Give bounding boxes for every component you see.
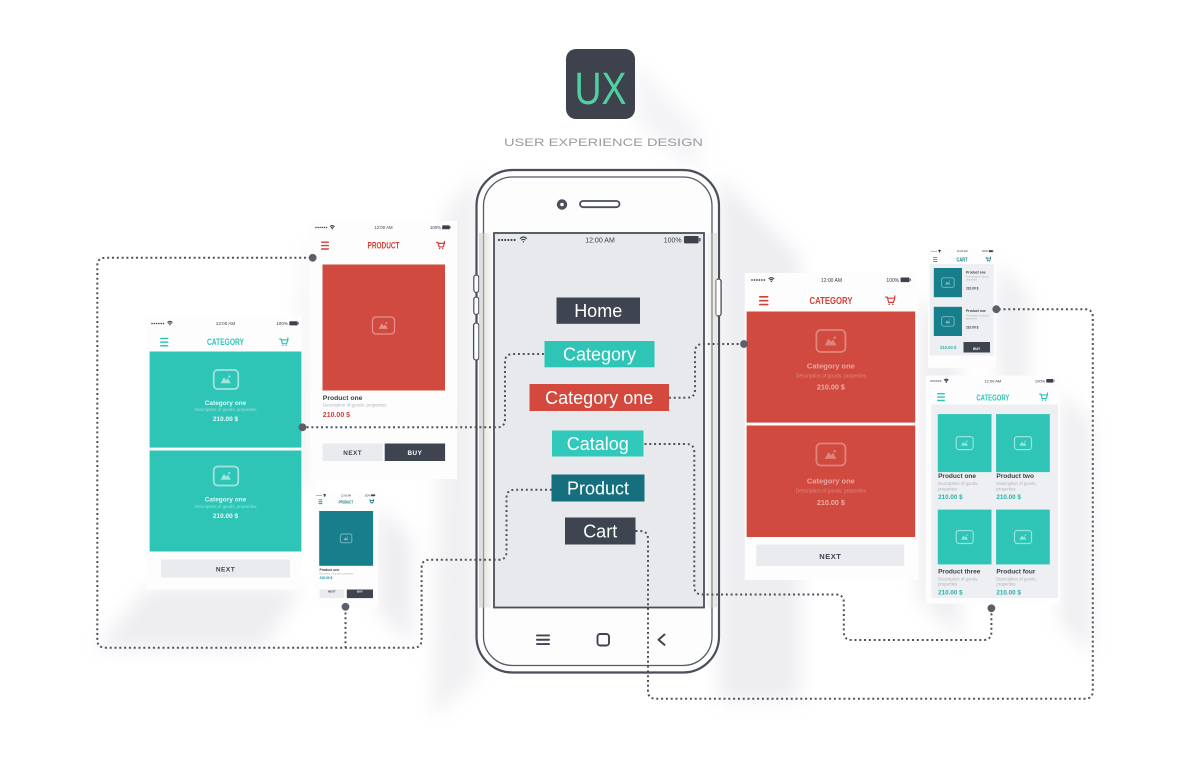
svg-text:12:00 AM: 12:00 AM [341,494,351,497]
svg-text:properties: properties [938,486,957,491]
svg-text:Category: Category [563,344,636,364]
svg-text:210.00 $: 210.00 $ [323,412,350,419]
svg-text:Category one: Category one [807,476,855,485]
svg-text:Description of goods, properti: Description of goods, properties [796,489,867,495]
svg-text:100%: 100% [886,278,899,284]
svg-text:Product four: Product four [996,569,1035,576]
svg-text:Catalog: Catalog [567,434,629,454]
svg-text:Product one: Product one [966,270,986,274]
svg-text:NEXT: NEXT [819,552,841,561]
svg-text:BUY: BUY [357,590,363,594]
svg-text:12:00 AM: 12:00 AM [374,225,393,230]
svg-text:Product one: Product one [966,309,986,313]
svg-text:210.00 $: 210.00 $ [213,416,239,423]
svg-text:NEXT: NEXT [216,567,235,574]
svg-text:BUY: BUY [973,347,981,351]
svg-text:properties: properties [966,318,978,321]
svg-text:210.00 $: 210.00 $ [938,589,963,596]
svg-text:properties: properties [996,582,1015,587]
svg-text:12:00 AM: 12:00 AM [821,278,842,284]
svg-text:CATEGORY: CATEGORY [207,337,244,348]
svg-text:210.00 $: 210.00 $ [938,494,963,501]
svg-text:100%: 100% [1035,378,1046,383]
svg-text:Category one: Category one [807,361,855,370]
svg-text:PRODUCT: PRODUCT [339,499,354,504]
svg-text:Description of goods, properti: Description of goods, properties [320,572,355,575]
svg-text:CART: CART [957,257,968,263]
svg-text:UX: UX [575,63,627,114]
svg-text:CATEGORY: CATEGORY [976,392,1009,402]
svg-text:Description of goods, properti: Description of goods, properties [195,407,258,412]
svg-text:210.00 $: 210.00 $ [996,589,1021,596]
svg-text:210.00 $: 210.00 $ [966,287,979,291]
svg-text:210.00 $: 210.00 $ [966,325,979,329]
svg-text:210.00 $: 210.00 $ [940,345,957,350]
svg-text:210.00 $: 210.00 $ [996,494,1021,501]
svg-text:Category one: Category one [545,388,653,408]
svg-text:12:00 AM: 12:00 AM [585,238,615,245]
svg-text:Category one: Category one [205,497,247,504]
svg-text:NEXT: NEXT [328,590,336,594]
svg-text:100%: 100% [664,238,682,245]
svg-text:BUY: BUY [408,450,423,457]
svg-text:Product two: Product two [996,473,1034,480]
svg-text:Description of goods, properti: Description of goods, properties [195,504,258,509]
svg-text:NEXT: NEXT [343,450,362,457]
svg-text:properties: properties [966,279,978,282]
svg-text:Cart: Cart [583,521,617,541]
svg-text:properties: properties [996,486,1015,491]
svg-text:CATEGORY: CATEGORY [810,295,853,307]
svg-text:PRODUCT: PRODUCT [368,240,400,250]
svg-text:Product one: Product one [320,568,340,572]
svg-text:12:00 AM: 12:00 AM [957,249,968,253]
svg-text:210.00 $: 210.00 $ [320,576,333,580]
svg-text:210.00 $: 210.00 $ [817,498,845,507]
svg-text:properties: properties [938,582,957,587]
svg-text:100%: 100% [430,225,441,230]
svg-text:100%: 100% [982,249,989,253]
svg-text:Product one: Product one [323,395,363,402]
svg-text:Category one: Category one [205,400,247,407]
svg-text:Home: Home [574,301,622,321]
svg-text:100%: 100% [364,494,371,497]
svg-text:210.00 $: 210.00 $ [213,513,239,520]
svg-text:USER EXPERIENCE DESIGN: USER EXPERIENCE DESIGN [504,137,703,149]
svg-text:210.00 $: 210.00 $ [817,383,845,392]
svg-text:Product three: Product three [938,569,981,576]
svg-text:100%: 100% [276,321,288,326]
svg-text:Description of goods, properti: Description of goods, properties [796,374,867,380]
svg-text:12:00 AM: 12:00 AM [984,378,1001,383]
svg-text:Product one: Product one [938,473,976,480]
svg-text:Description of goods, properti: Description of goods, properties [323,403,387,408]
svg-text:12:00 AM: 12:00 AM [216,321,236,326]
svg-text:Product: Product [567,478,629,498]
